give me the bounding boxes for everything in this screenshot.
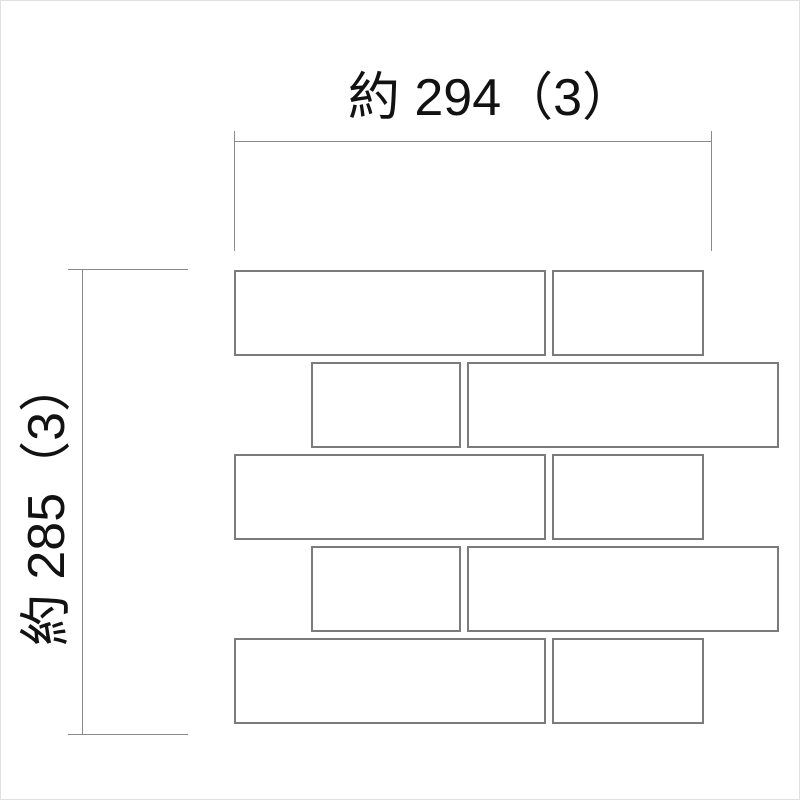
h-dimension-extension-left — [234, 131, 235, 251]
tile-dimension-diagram: 約 294（3） 約 285（3） — [0, 0, 800, 800]
brick — [552, 270, 704, 356]
brick — [234, 270, 546, 356]
v-dimension-extension-top — [68, 269, 188, 270]
brick — [234, 454, 546, 540]
brick — [552, 638, 704, 724]
brick — [467, 546, 779, 632]
brick — [234, 638, 546, 724]
vertical-dimension-label: 約 285（3） — [21, 360, 73, 646]
h-dimension-extension-right — [711, 131, 712, 251]
v-dimension-extension-bottom — [68, 734, 188, 735]
brick — [552, 454, 704, 540]
horizontal-dimension-label: 約 294（3） — [348, 72, 634, 124]
brick — [311, 546, 461, 632]
h-dimension-line — [234, 141, 712, 142]
brick — [311, 362, 461, 448]
brick — [467, 362, 779, 448]
v-dimension-line — [82, 269, 83, 734]
